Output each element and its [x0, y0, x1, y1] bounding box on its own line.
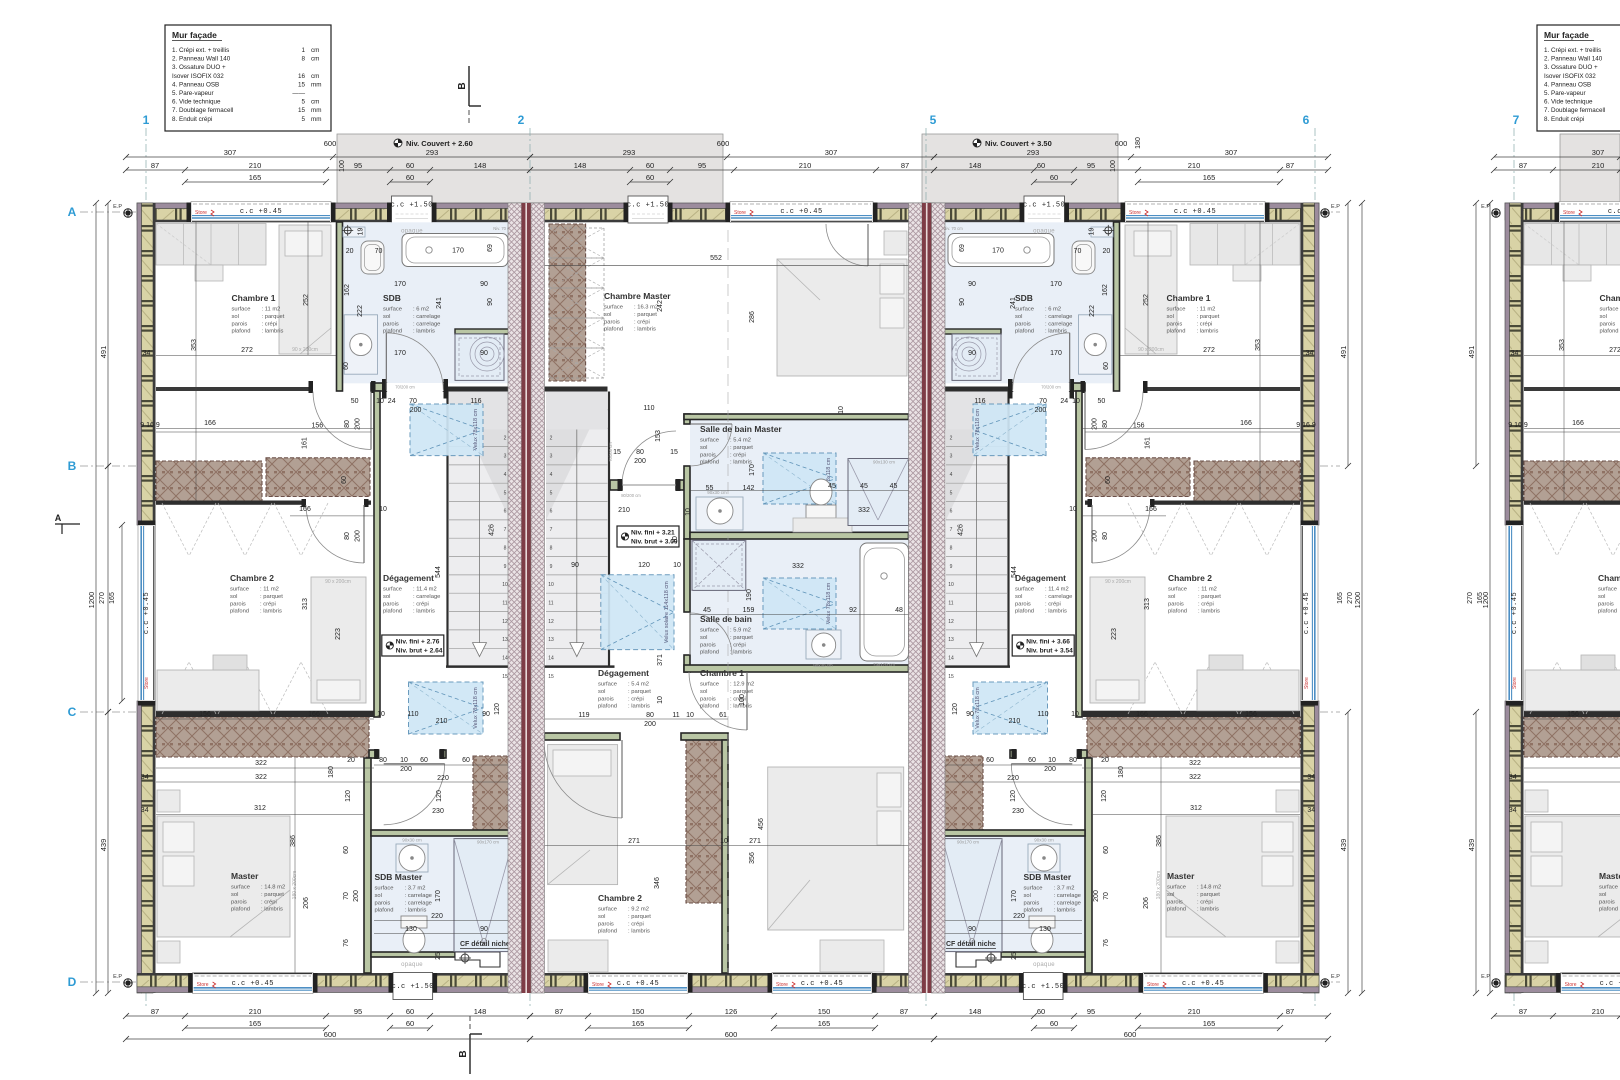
- svg-text:parois: parois: [700, 642, 716, 648]
- svg-text:: 3.7 m2: : 3.7 m2: [405, 886, 426, 892]
- svg-text:: parquet: : parquet: [262, 314, 285, 320]
- svg-text:100: 100: [339, 160, 346, 172]
- svg-text:surface: surface: [232, 307, 251, 313]
- svg-text:14: 14: [548, 656, 554, 662]
- svg-text:60: 60: [343, 846, 350, 854]
- svg-text:4: 4: [504, 472, 507, 478]
- svg-text:5: 5: [301, 116, 305, 123]
- svg-text:: parquet: : parquet: [628, 689, 651, 695]
- svg-text:48: 48: [895, 607, 903, 614]
- svg-text:15: 15: [948, 674, 954, 680]
- svg-text:sol: sol: [700, 635, 707, 641]
- svg-text:10: 10: [685, 508, 692, 516]
- svg-text:386: 386: [290, 835, 297, 847]
- svg-text:24: 24: [388, 398, 396, 405]
- svg-text:Chambre 2: Chambre 2: [598, 893, 642, 903]
- svg-text:230: 230: [1012, 808, 1024, 815]
- svg-text:15: 15: [298, 107, 306, 114]
- svg-text:10: 10: [1069, 506, 1077, 513]
- svg-text:600: 600: [324, 139, 337, 148]
- svg-text:Velux 78x118 cm: Velux 78x118 cm: [975, 409, 981, 451]
- svg-text:210: 210: [249, 161, 262, 170]
- svg-text:Salle de bain Master: Salle de bain Master: [700, 424, 782, 434]
- svg-text:surface: surface: [700, 628, 719, 634]
- svg-text:: lambris: : lambris: [1198, 609, 1220, 615]
- svg-text:13: 13: [948, 637, 954, 643]
- svg-text:: lambris: : lambris: [1197, 907, 1219, 913]
- svg-text:165: 165: [818, 1019, 831, 1028]
- svg-text:120: 120: [1101, 790, 1108, 802]
- svg-text:sol: sol: [375, 893, 382, 899]
- svg-text:60: 60: [406, 1019, 414, 1028]
- svg-text:sol: sol: [383, 314, 390, 320]
- svg-text:25: 25: [1011, 952, 1018, 960]
- svg-text:: crépi: : crépi: [730, 642, 746, 648]
- svg-text:3: 3: [950, 454, 953, 460]
- svg-text:Store: Store: [195, 210, 207, 216]
- svg-text:sol: sol: [1168, 594, 1175, 600]
- svg-text:170: 170: [394, 350, 406, 357]
- svg-text:plafond: plafond: [230, 609, 249, 615]
- svg-text:surface: surface: [383, 587, 402, 593]
- svg-text:70: 70: [409, 398, 417, 405]
- svg-text:15: 15: [502, 674, 508, 680]
- svg-text:: crépi: : crépi: [261, 899, 277, 905]
- svg-text:B: B: [68, 459, 77, 473]
- svg-text:parois: parois: [598, 696, 614, 702]
- svg-text:116: 116: [470, 398, 481, 405]
- svg-text:6: 6: [950, 509, 953, 515]
- svg-text:10: 10: [672, 536, 679, 544]
- svg-text:parois: parois: [383, 601, 399, 607]
- svg-text:210: 210: [1592, 1007, 1605, 1016]
- svg-text:120: 120: [1010, 790, 1017, 802]
- svg-text:60: 60: [420, 757, 428, 764]
- svg-text:165: 165: [1203, 1019, 1216, 1028]
- svg-text:: carrelage: : carrelage: [1054, 900, 1081, 906]
- svg-text:Velux 78x118 cm: Velux 78x118 cm: [473, 409, 479, 451]
- svg-text:: carrelage: : carrelage: [413, 314, 440, 320]
- svg-text:Niv. fini + 2.76: Niv. fini + 2.76: [396, 639, 440, 646]
- svg-text:mm: mm: [311, 81, 322, 88]
- svg-text:34: 34: [1509, 807, 1517, 814]
- svg-text:10: 10: [379, 506, 387, 513]
- svg-text:: lambris: : lambris: [413, 609, 435, 615]
- svg-text:3: 3: [550, 454, 553, 460]
- svg-text:9 16 9: 9 16 9: [140, 422, 160, 429]
- svg-text:: carrelage: : carrelage: [1045, 594, 1072, 600]
- svg-text:sol: sol: [1598, 594, 1605, 600]
- svg-text:: carrelage: : carrelage: [405, 893, 432, 899]
- svg-text:34: 34: [141, 807, 149, 814]
- svg-text:surface: surface: [1167, 885, 1186, 891]
- svg-text:90x170 cm: 90x170 cm: [957, 840, 979, 845]
- svg-text:Salle de bain: Salle de bain: [700, 614, 752, 624]
- svg-text:C: C: [68, 705, 77, 719]
- svg-text:90x30 cm: 90x30 cm: [402, 838, 422, 843]
- svg-text:356: 356: [749, 852, 756, 864]
- svg-text:: lambris: : lambris: [261, 907, 283, 913]
- svg-text:10: 10: [673, 562, 681, 569]
- svg-text:8: 8: [504, 545, 507, 551]
- svg-text:252: 252: [303, 294, 310, 306]
- svg-text:15: 15: [670, 449, 678, 456]
- svg-text:90: 90: [968, 926, 976, 933]
- svg-text:322: 322: [255, 774, 267, 781]
- svg-text:3: 3: [504, 454, 507, 460]
- svg-text:plafond: plafond: [1168, 609, 1187, 615]
- svg-text:: 5.4 m2: : 5.4 m2: [628, 682, 649, 688]
- svg-text:439: 439: [1339, 839, 1348, 852]
- svg-text:8. Enduit crépi: 8. Enduit crépi: [172, 116, 212, 123]
- svg-text:A: A: [55, 513, 62, 523]
- svg-text:148: 148: [474, 1007, 487, 1016]
- svg-text:: parquet: : parquet: [1198, 594, 1221, 600]
- svg-text:148: 148: [969, 161, 982, 170]
- svg-text:: crépi: : crépi: [1045, 601, 1061, 607]
- svg-text:D: D: [68, 975, 77, 989]
- svg-text:313: 313: [302, 598, 309, 610]
- svg-text:: carrelage: : carrelage: [1045, 314, 1072, 320]
- svg-text:45: 45: [890, 483, 898, 490]
- svg-text:272: 272: [241, 347, 253, 354]
- svg-text:plafond: plafond: [700, 650, 719, 656]
- svg-text:plafond: plafond: [604, 327, 623, 333]
- svg-text:60: 60: [341, 476, 348, 484]
- svg-text:: parquet: : parquet: [730, 635, 753, 641]
- svg-text:Isover ISOFIX 032: Isover ISOFIX 032: [1544, 73, 1596, 80]
- svg-text:parois: parois: [700, 696, 716, 702]
- svg-text:100: 100: [739, 694, 746, 706]
- svg-text:272: 272: [1203, 347, 1215, 354]
- svg-text:210: 210: [249, 1007, 262, 1016]
- svg-text:Chambre Master: Chambre Master: [604, 291, 671, 301]
- svg-text:95: 95: [1087, 161, 1095, 170]
- svg-text:180: 180: [1135, 137, 1142, 149]
- svg-text:165: 165: [1337, 592, 1344, 604]
- svg-text:Niv. fini + 3.21: Niv. fini + 3.21: [631, 530, 675, 537]
- svg-text:87: 87: [1519, 161, 1527, 170]
- svg-text:210: 210: [1592, 161, 1605, 170]
- svg-text:A: A: [68, 205, 77, 219]
- svg-text:surface: surface: [375, 886, 394, 892]
- svg-text:: lambris: : lambris: [413, 329, 435, 335]
- svg-text:c.c +0.45: c.c +0.45: [617, 980, 659, 988]
- svg-text:60: 60: [1050, 173, 1058, 182]
- svg-text:opaque: opaque: [401, 962, 423, 968]
- svg-text:: lambris: : lambris: [628, 929, 650, 935]
- svg-text:90x170 cm: 90x170 cm: [477, 840, 499, 845]
- svg-text:plafond: plafond: [598, 704, 617, 710]
- svg-text:45: 45: [828, 483, 836, 490]
- svg-text:12: 12: [502, 619, 508, 625]
- svg-text:11: 11: [948, 600, 953, 606]
- svg-text:90: 90: [968, 281, 976, 288]
- svg-text:: carrelage: : carrelage: [413, 594, 440, 600]
- svg-text:c.c +0.45: c.c +0.45: [780, 208, 822, 216]
- svg-text:70: 70: [1039, 398, 1047, 405]
- svg-text:90 x 200cm: 90 x 200cm: [1138, 347, 1164, 353]
- svg-text:15: 15: [298, 81, 306, 88]
- svg-text:SDB Master: SDB Master: [375, 872, 423, 882]
- svg-text:95: 95: [698, 161, 706, 170]
- svg-text:80: 80: [646, 712, 654, 719]
- svg-text:c.c +0.45: c.c +0.45: [240, 208, 282, 216]
- svg-text:87: 87: [900, 1007, 908, 1016]
- svg-text:6. Vide technique: 6. Vide technique: [1544, 99, 1593, 106]
- svg-text:5. Pare-vapeur: 5. Pare-vapeur: [1544, 90, 1586, 97]
- svg-text:11: 11: [502, 600, 507, 606]
- svg-text:8. Enduit crépi: 8. Enduit crépi: [1544, 116, 1584, 123]
- svg-text:mm: mm: [311, 107, 322, 114]
- svg-text:34: 34: [143, 350, 151, 357]
- svg-text:sol: sol: [1024, 893, 1031, 899]
- svg-text:120: 120: [638, 562, 650, 569]
- svg-text:110: 110: [643, 405, 654, 412]
- svg-text:156: 156: [199, 711, 211, 718]
- svg-text:166: 166: [1572, 420, 1584, 427]
- svg-text:456: 456: [758, 818, 765, 830]
- svg-text:sol: sol: [700, 689, 707, 695]
- svg-text:200: 200: [1093, 890, 1100, 902]
- svg-text:E.P: E.P: [1331, 974, 1340, 980]
- svg-text:312: 312: [254, 805, 266, 812]
- svg-text:220: 220: [437, 775, 449, 782]
- svg-text:307: 307: [1592, 148, 1605, 157]
- svg-text:552: 552: [710, 255, 722, 262]
- svg-text:2: 2: [504, 435, 507, 441]
- svg-text:156: 156: [1245, 711, 1257, 718]
- svg-text:190: 190: [746, 589, 753, 601]
- svg-text:: lambris: : lambris: [730, 650, 752, 656]
- svg-text:CF détail niche: CF détail niche: [946, 941, 996, 948]
- svg-text:90x30 cm: 90x30 cm: [1034, 838, 1054, 843]
- svg-text:307: 307: [825, 148, 838, 157]
- svg-text:126: 126: [725, 1007, 738, 1016]
- svg-text:Dégagement: Dégagement: [598, 668, 649, 678]
- svg-text:223: 223: [1111, 628, 1118, 640]
- svg-text:surface: surface: [604, 305, 623, 311]
- svg-text:sol: sol: [1167, 892, 1174, 898]
- svg-text:parois: parois: [383, 321, 399, 327]
- svg-text:241: 241: [1010, 297, 1017, 309]
- svg-text:162: 162: [1102, 284, 1109, 296]
- svg-text:544: 544: [435, 566, 442, 578]
- svg-text:Master: Master: [1167, 871, 1195, 881]
- svg-text:parois: parois: [232, 321, 248, 327]
- svg-text:322: 322: [1189, 774, 1201, 781]
- svg-text:: lambris: : lambris: [1197, 329, 1219, 335]
- svg-text:20: 20: [347, 757, 355, 764]
- svg-text:Velux 78x118 cm: Velux 78x118 cm: [473, 687, 479, 729]
- svg-text:353: 353: [1559, 339, 1566, 351]
- svg-text:4. Panneau OSB: 4. Panneau OSB: [1544, 81, 1591, 88]
- svg-text:34: 34: [1306, 350, 1314, 357]
- svg-text:: lambris: : lambris: [405, 908, 427, 914]
- svg-text:60: 60: [406, 1007, 414, 1016]
- svg-text:80: 80: [379, 757, 387, 764]
- svg-text:10: 10: [686, 712, 694, 719]
- svg-text:c.c +1.50: c.c +1.50: [1023, 202, 1065, 210]
- svg-text:353: 353: [191, 339, 198, 351]
- svg-text:286: 286: [749, 311, 756, 323]
- svg-text:600: 600: [324, 1030, 337, 1039]
- svg-text:parois: parois: [1024, 900, 1040, 906]
- svg-text:223: 223: [335, 628, 342, 640]
- svg-text:c.c +0.45: c.c +0.45: [232, 980, 274, 988]
- svg-text:80: 80: [1102, 420, 1109, 428]
- svg-text:20: 20: [1103, 248, 1111, 255]
- svg-text:80: 80: [1102, 532, 1109, 540]
- svg-text:13: 13: [502, 637, 508, 643]
- svg-text:parois: parois: [230, 601, 246, 607]
- svg-text:34: 34: [1307, 774, 1315, 781]
- svg-text:7. Doublage fermacell: 7. Doublage fermacell: [172, 107, 233, 114]
- svg-text:: lambris: : lambris: [260, 609, 282, 615]
- svg-text:Chambre 1: Chambre 1: [1167, 293, 1211, 303]
- svg-text:Niv. brut + 3.54: Niv. brut + 3.54: [1026, 648, 1073, 655]
- svg-text:70: 70: [1103, 892, 1110, 900]
- svg-text:200: 200: [355, 530, 362, 542]
- svg-text:Mur façade: Mur façade: [172, 30, 217, 40]
- svg-text:2: 2: [950, 435, 953, 441]
- svg-text:9 16 9: 9 16 9: [1296, 422, 1316, 429]
- svg-text:c.c +1.50: c.c +1.50: [1022, 983, 1064, 991]
- svg-text:293: 293: [1027, 148, 1040, 157]
- svg-text:161: 161: [1144, 437, 1151, 449]
- svg-text:76: 76: [343, 939, 350, 947]
- svg-text:7: 7: [950, 527, 953, 533]
- svg-text:: crépi: : crépi: [1198, 601, 1214, 607]
- svg-text:plafond: plafond: [1600, 329, 1619, 335]
- svg-text:parois: parois: [598, 921, 614, 927]
- svg-text:plafond: plafond: [1167, 907, 1186, 913]
- svg-text:parois: parois: [700, 452, 716, 458]
- svg-text:90 x 200cm: 90 x 200cm: [292, 347, 318, 353]
- svg-text:200: 200: [1044, 766, 1056, 773]
- svg-text:165: 165: [632, 1019, 645, 1028]
- svg-text:: 9.2 m2: : 9.2 m2: [628, 907, 649, 913]
- svg-text:: lambris: : lambris: [634, 327, 656, 333]
- svg-text:87: 87: [151, 161, 159, 170]
- svg-text:312: 312: [1190, 805, 1202, 812]
- svg-text:439: 439: [1467, 839, 1476, 852]
- svg-text:90: 90: [966, 711, 974, 718]
- svg-text:c.c +0.45: c.c +0.45: [1600, 980, 1620, 988]
- svg-text:Niv. fini + 3.66: Niv. fini + 3.66: [1026, 639, 1070, 646]
- svg-text:95: 95: [1087, 1007, 1095, 1016]
- svg-text:165: 165: [1477, 592, 1484, 604]
- svg-text:: 6 m2: : 6 m2: [1045, 307, 1061, 313]
- svg-text:161: 161: [302, 437, 309, 449]
- svg-text:25: 25: [435, 952, 442, 960]
- svg-text:90: 90: [480, 350, 488, 357]
- svg-text:: 11 m2: : 11 m2: [1198, 587, 1217, 593]
- svg-text:439: 439: [99, 839, 108, 852]
- svg-text:10: 10: [720, 838, 728, 845]
- svg-text:Chambre 2: Chambre 2: [1598, 573, 1620, 583]
- svg-text:1: 1: [301, 47, 305, 54]
- svg-text:10: 10: [838, 406, 845, 414]
- svg-text:surface: surface: [1168, 587, 1187, 593]
- svg-text:87: 87: [151, 1007, 159, 1016]
- svg-text:200: 200: [353, 890, 360, 902]
- svg-text:70/200 cm: 70/200 cm: [395, 384, 415, 389]
- svg-text:166: 166: [1136, 711, 1148, 718]
- svg-text:270: 270: [1467, 592, 1474, 604]
- svg-text:: 5.4 m2: : 5.4 m2: [730, 438, 751, 444]
- svg-text:6: 6: [550, 509, 553, 515]
- svg-text:opaque: opaque: [1033, 229, 1055, 235]
- svg-text:166: 166: [299, 506, 311, 513]
- svg-text:90: 90: [968, 350, 976, 357]
- svg-text:10: 10: [376, 398, 384, 405]
- svg-text:271: 271: [749, 838, 761, 845]
- svg-text:sol: sol: [598, 914, 605, 920]
- svg-text:90: 90: [482, 711, 490, 718]
- svg-text:90: 90: [487, 298, 494, 306]
- svg-text:: 14.8 m2: : 14.8 m2: [261, 885, 285, 891]
- svg-text:165: 165: [249, 173, 262, 182]
- svg-text:60: 60: [646, 161, 654, 170]
- svg-text:surface: surface: [383, 307, 402, 313]
- svg-text:9: 9: [950, 564, 953, 570]
- svg-text:1200: 1200: [1353, 592, 1362, 609]
- svg-text:6: 6: [1303, 113, 1310, 127]
- svg-text:parois: parois: [231, 899, 247, 905]
- svg-text:SDB Master: SDB Master: [1024, 872, 1072, 882]
- svg-text:parois: parois: [1167, 321, 1183, 327]
- svg-text:: crépi: : crépi: [413, 601, 429, 607]
- svg-text:: lambris: : lambris: [628, 704, 650, 710]
- svg-text:20: 20: [1101, 757, 1109, 764]
- svg-text:153: 153: [655, 430, 662, 442]
- svg-text:165: 165: [249, 1019, 262, 1028]
- svg-text:9: 9: [550, 564, 553, 570]
- svg-text:13: 13: [548, 637, 554, 643]
- svg-text:c.c +0.45: c.c +0.45: [1182, 980, 1224, 988]
- svg-text:270: 270: [99, 592, 106, 604]
- svg-text:313: 313: [1144, 598, 1151, 610]
- svg-text:Master: Master: [231, 871, 259, 881]
- svg-text:: crépi: : crépi: [260, 601, 276, 607]
- svg-text:14: 14: [502, 656, 508, 662]
- svg-text:Store: Store: [1129, 210, 1141, 216]
- svg-text:: 16.3 m2: : 16.3 m2: [634, 305, 658, 311]
- svg-text:2: 2: [550, 435, 553, 441]
- svg-text:142: 142: [743, 485, 755, 492]
- svg-text:252: 252: [1143, 294, 1150, 306]
- svg-text:7: 7: [550, 527, 553, 533]
- svg-text:491: 491: [1467, 346, 1476, 359]
- svg-text:600: 600: [1124, 1030, 1137, 1039]
- svg-text:10: 10: [1072, 398, 1080, 405]
- svg-text:19: 19: [1089, 228, 1096, 236]
- svg-text:7: 7: [504, 527, 507, 533]
- svg-text:100: 100: [1110, 160, 1117, 172]
- svg-text:170: 170: [1050, 350, 1062, 357]
- svg-text:10: 10: [657, 696, 664, 704]
- svg-text:1: 1: [143, 113, 150, 127]
- svg-text:322: 322: [255, 760, 267, 767]
- svg-text:Velux 78x118 cm: Velux 78x118 cm: [826, 582, 832, 624]
- svg-text:: carrelage: : carrelage: [1054, 893, 1081, 899]
- svg-text:90 x 200cm: 90 x 200cm: [1105, 579, 1131, 585]
- svg-text:E.P: E.P: [113, 204, 122, 210]
- svg-text:Niv. 70 cm: Niv. 70 cm: [943, 226, 963, 231]
- svg-text:Chambre 2: Chambre 2: [230, 573, 274, 583]
- svg-text:parois: parois: [1015, 601, 1031, 607]
